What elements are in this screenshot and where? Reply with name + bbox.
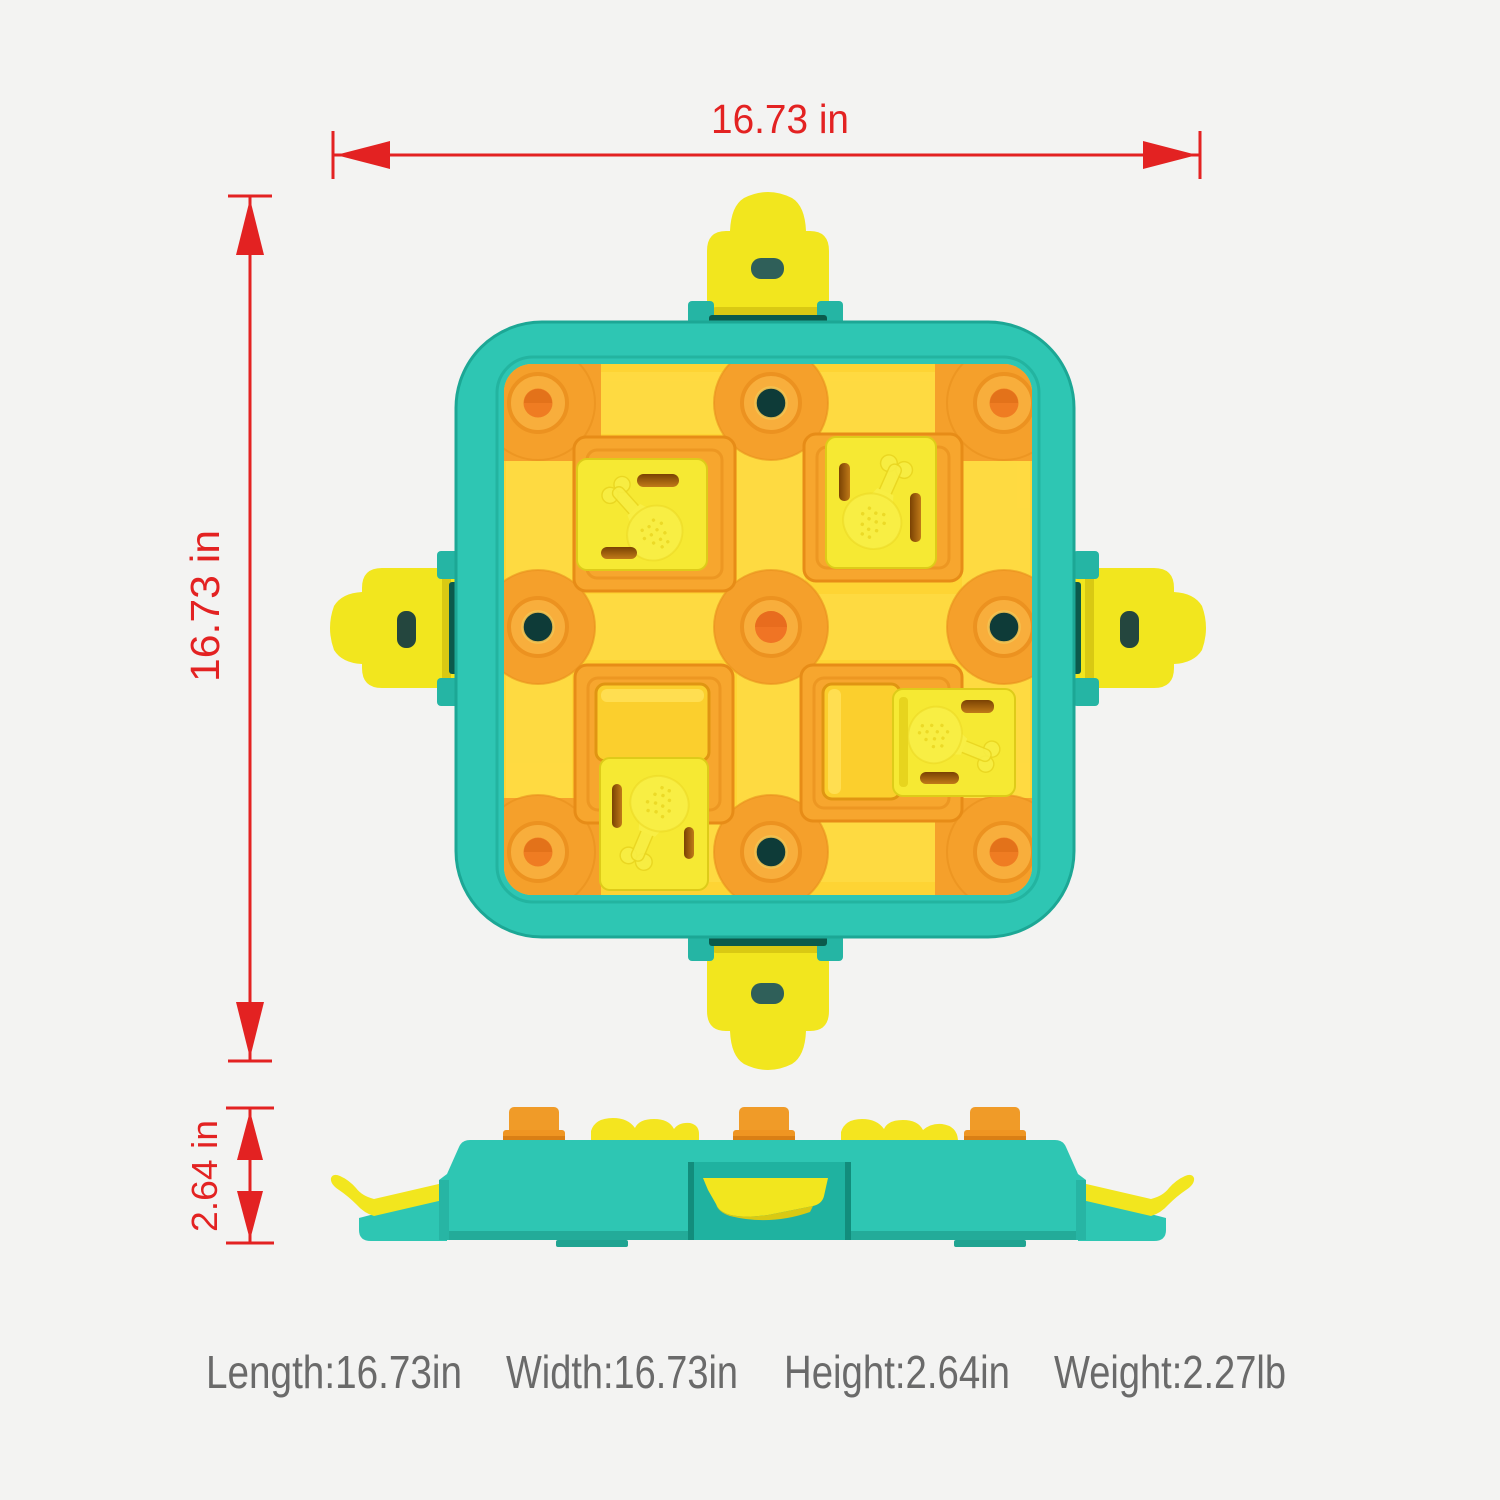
- svg-text:16.73 in: 16.73 in: [711, 96, 849, 142]
- svg-text:Width:16.73in: Width:16.73in: [506, 1346, 738, 1398]
- svg-text:Weight:2.27lb: Weight:2.27lb: [1054, 1346, 1286, 1398]
- svg-text:Height:2.64in: Height:2.64in: [784, 1346, 1010, 1398]
- svg-text:16.73 in: 16.73 in: [182, 530, 228, 682]
- svg-text:2.64 in: 2.64 in: [184, 1120, 225, 1232]
- svg-text:Length:16.73in: Length:16.73in: [206, 1346, 462, 1398]
